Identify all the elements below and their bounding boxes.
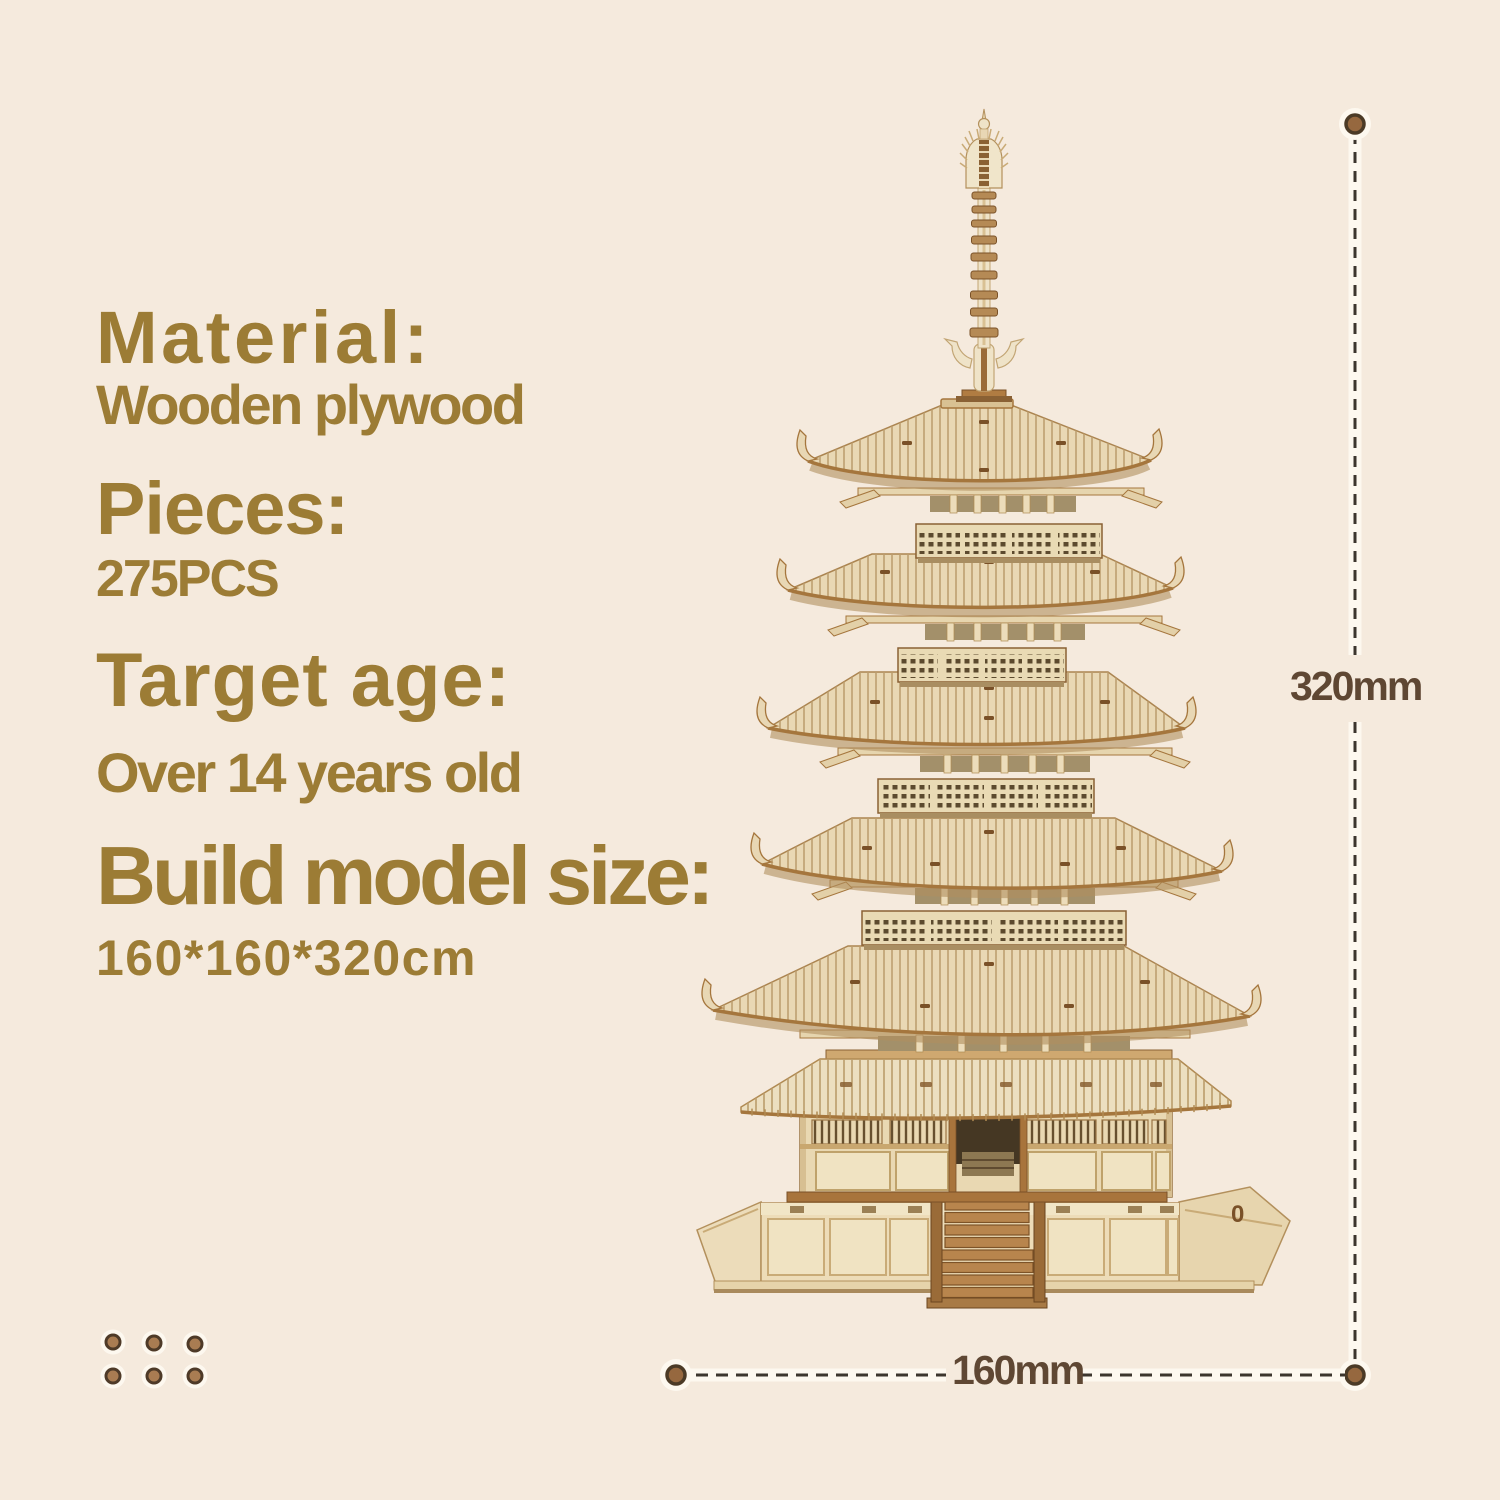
svg-text:0: 0	[1231, 1201, 1244, 1228]
